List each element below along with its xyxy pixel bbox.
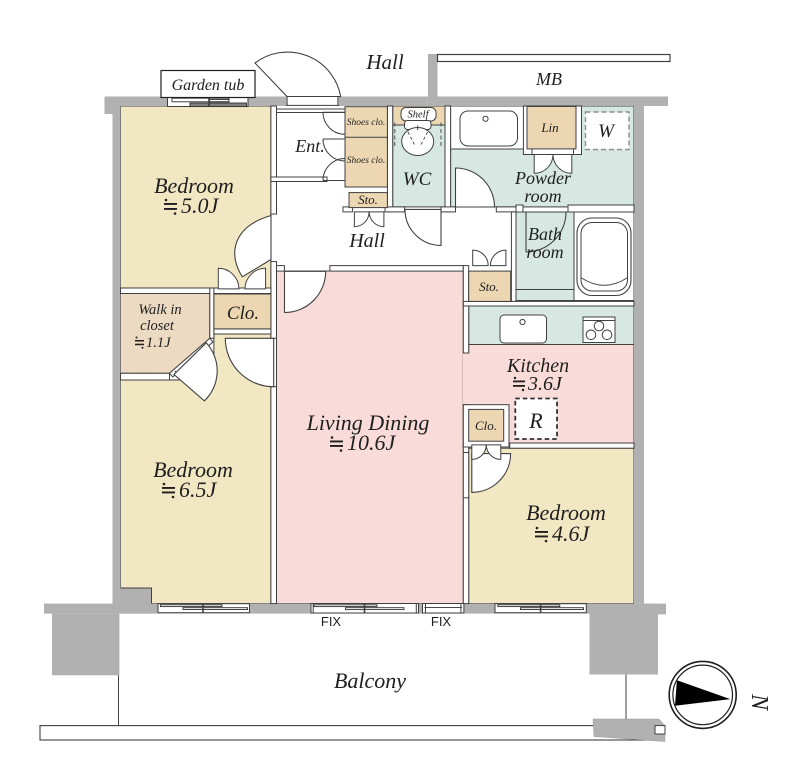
svg-text:room: room — [524, 186, 561, 206]
svg-text:1.1J: 1.1J — [146, 335, 171, 351]
svg-text:Balcony: Balcony — [334, 668, 406, 693]
svg-text:FIX: FIX — [321, 614, 342, 629]
svg-text:W: W — [598, 121, 616, 142]
svg-text:Bath: Bath — [528, 224, 562, 244]
svg-text:6.5J: 6.5J — [179, 477, 218, 502]
svg-text:Shelf: Shelf — [408, 110, 431, 121]
svg-text:Clo.: Clo. — [227, 303, 259, 324]
svg-text:Shoes clo.: Shoes clo. — [347, 156, 386, 166]
svg-text:FIX: FIX — [431, 614, 452, 629]
svg-text:4.6J: 4.6J — [552, 521, 591, 546]
svg-text:R: R — [528, 408, 543, 433]
svg-text:Powder: Powder — [514, 168, 572, 188]
svg-text:Ent.: Ent. — [294, 136, 325, 156]
svg-text:MB: MB — [535, 69, 562, 89]
svg-text:Sto.: Sto. — [479, 279, 499, 294]
svg-text:Lin: Lin — [540, 120, 558, 135]
svg-text:Hall: Hall — [348, 230, 385, 252]
svg-text:Garden tub: Garden tub — [172, 77, 245, 94]
svg-text:Hall: Hall — [365, 50, 404, 74]
svg-text:room: room — [526, 242, 563, 262]
svg-text:WC: WC — [403, 169, 432, 190]
svg-text:N: N — [746, 693, 772, 712]
svg-text:Sto.: Sto. — [358, 192, 378, 207]
svg-text:10.6J: 10.6J — [347, 430, 397, 455]
svg-text:closet: closet — [140, 318, 175, 334]
svg-text:3.6J: 3.6J — [527, 373, 563, 395]
svg-text:Shoes clo.: Shoes clo. — [347, 118, 386, 128]
svg-text:Walk in: Walk in — [138, 302, 181, 318]
svg-text:Clo.: Clo. — [475, 418, 497, 433]
svg-text:5.0J: 5.0J — [181, 193, 220, 218]
